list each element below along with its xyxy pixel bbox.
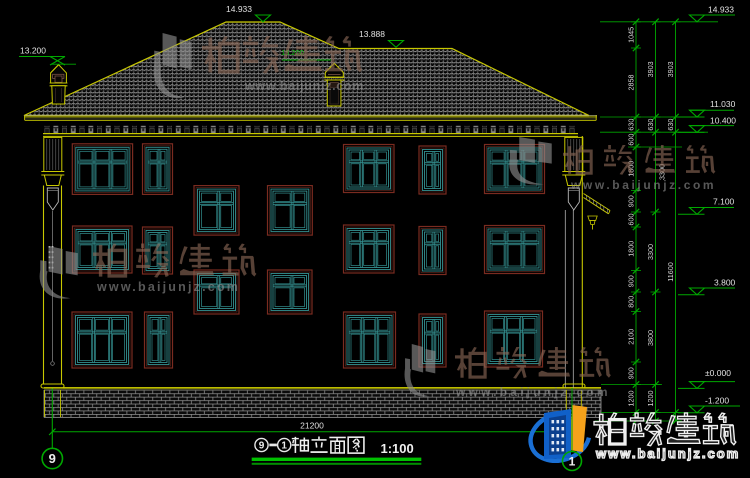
svg-text:9: 9 [49, 451, 56, 466]
svg-text:600: 600 [627, 214, 636, 226]
svg-text:www.baijunjz.com: www.baijunjz.com [595, 446, 740, 461]
svg-text:800: 800 [627, 296, 636, 308]
svg-text:630: 630 [646, 119, 655, 131]
svg-text:1800: 1800 [627, 241, 636, 257]
svg-text:www.baijunjz.com: www.baijunjz.com [96, 280, 240, 294]
svg-text:±0.000: ±0.000 [705, 368, 731, 378]
svg-text:900: 900 [627, 195, 636, 207]
svg-text:600: 600 [627, 134, 636, 146]
svg-text:1:100: 1:100 [381, 441, 414, 456]
svg-text:11600: 11600 [666, 262, 675, 281]
svg-text:2100: 2100 [627, 329, 636, 345]
svg-text:1200: 1200 [646, 391, 655, 407]
svg-text:www.baijunjz.com: www.baijunjz.com [244, 79, 364, 93]
svg-text:10.400: 10.400 [710, 116, 736, 126]
svg-text:14.933: 14.933 [708, 5, 734, 15]
svg-text:630: 630 [627, 119, 636, 131]
svg-text:13.888: 13.888 [359, 29, 385, 39]
svg-text:www.baijunjz.com: www.baijunjz.com [570, 178, 716, 192]
svg-text:1045: 1045 [627, 27, 636, 43]
svg-text:13.200: 13.200 [20, 46, 46, 56]
svg-text:3903: 3903 [646, 61, 655, 77]
svg-text:1200: 1200 [627, 391, 636, 407]
svg-text:900: 900 [627, 275, 636, 287]
svg-text:1: 1 [569, 454, 576, 468]
svg-text:900: 900 [627, 367, 636, 379]
svg-text:11.030: 11.030 [710, 99, 736, 109]
svg-text:2858: 2858 [627, 75, 636, 91]
svg-text:3903: 3903 [666, 61, 675, 77]
svg-text:3.800: 3.800 [714, 278, 736, 288]
svg-text:21200: 21200 [300, 421, 324, 431]
svg-text:1: 1 [281, 441, 287, 452]
svg-text:7.100: 7.100 [713, 197, 735, 207]
svg-text:www.baijunjz.com: www.baijunjz.com [455, 385, 611, 399]
svg-text:630: 630 [666, 119, 675, 131]
svg-text:14.933: 14.933 [226, 4, 252, 14]
svg-text:-1.200: -1.200 [705, 396, 729, 406]
svg-text:9: 9 [259, 441, 265, 452]
svg-text:3800: 3800 [646, 330, 655, 346]
svg-text:3300: 3300 [646, 244, 655, 260]
